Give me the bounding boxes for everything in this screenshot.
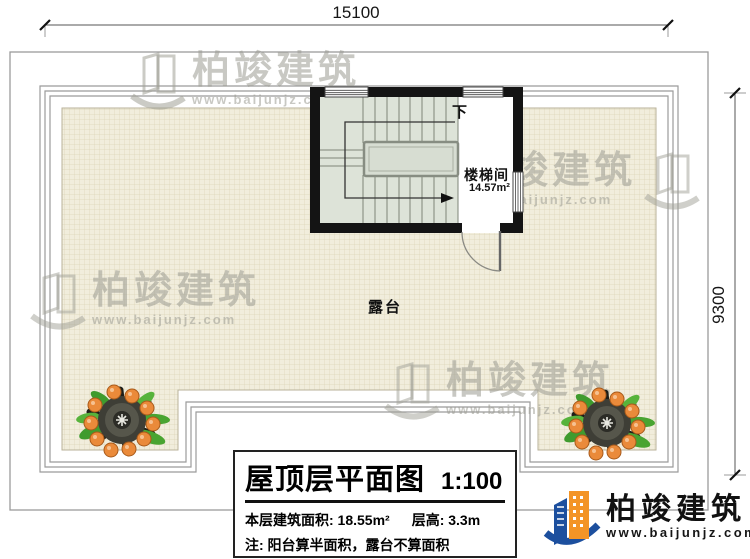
watermark-text: 柏竣建筑 www.baijunjz.com bbox=[446, 362, 614, 417]
watermark-text: 柏竣建筑 www.baijunjz.com bbox=[92, 272, 260, 327]
watermark-logo-icon bbox=[642, 152, 700, 216]
watermark-name: 柏竣建筑 bbox=[92, 272, 260, 310]
plant-icon bbox=[75, 385, 170, 457]
watermark-url: www.baijunjz.com bbox=[192, 92, 360, 107]
watermark-url: www.baijunjz.com bbox=[92, 312, 260, 327]
floor-height-text: 层高: 3.3m bbox=[412, 510, 480, 530]
watermark-logo-icon bbox=[28, 272, 86, 336]
stairwell-area-label: 14.57m² bbox=[469, 182, 510, 194]
terrace-label: 露台 bbox=[368, 296, 402, 317]
floorplan-canvas: 柏竣建筑 www.baijunjz.com 柏竣建筑 www.baijunjz.… bbox=[0, 0, 750, 559]
floor-area-text: 本层建筑面积: 18.55m² bbox=[245, 510, 390, 530]
door-icon bbox=[462, 223, 500, 271]
dimension-width-label: 15100 bbox=[300, 3, 412, 23]
stair-well bbox=[364, 142, 458, 176]
brand-website: www.baijunjz.com bbox=[606, 525, 750, 540]
direction-arrow-icon bbox=[441, 193, 454, 203]
stair-down-label: 下 bbox=[452, 101, 467, 122]
watermark: 柏竣建筑 www.baijunjz.com bbox=[128, 52, 360, 116]
brand-logo-icon bbox=[540, 483, 602, 551]
watermark-logo-icon bbox=[128, 52, 186, 116]
watermark: 柏竣建筑 www.baijunjz.com bbox=[28, 272, 260, 336]
title-stats-row: 本层建筑面积: 18.55m² 层高: 3.3m bbox=[245, 510, 505, 530]
title-block: 屋顶层平面图 1:100 本层建筑面积: 18.55m² 层高: 3.3m 注:… bbox=[233, 450, 517, 558]
stair-walking-line bbox=[345, 122, 455, 203]
title-row: 屋顶层平面图 1:100 bbox=[245, 456, 505, 503]
title-note-text: 注: 阳台算半面积，露台不算面积 bbox=[245, 535, 505, 555]
plan-title: 屋顶层平面图 bbox=[245, 456, 425, 498]
watermark: 柏竣建筑 www.baijunjz.com bbox=[382, 362, 614, 426]
watermark-url: www.baijunjz.com bbox=[468, 192, 636, 207]
brand-logo: 柏竣建筑 www.baijunjz.com bbox=[540, 483, 750, 551]
watermark-name: 柏竣建筑 bbox=[446, 362, 614, 400]
watermark-logo-icon bbox=[382, 362, 440, 426]
watermark-name: 柏竣建筑 bbox=[192, 52, 360, 90]
dimension-height-label: 9300 bbox=[701, 275, 737, 335]
plan-scale: 1:100 bbox=[441, 468, 502, 496]
watermark-text: 柏竣建筑 www.baijunjz.com bbox=[192, 52, 360, 107]
brand-name: 柏竣建筑 bbox=[606, 494, 750, 526]
brand-text: 柏竣建筑 www.baijunjz.com bbox=[606, 494, 750, 541]
watermark-url: www.baijunjz.com bbox=[446, 402, 614, 417]
